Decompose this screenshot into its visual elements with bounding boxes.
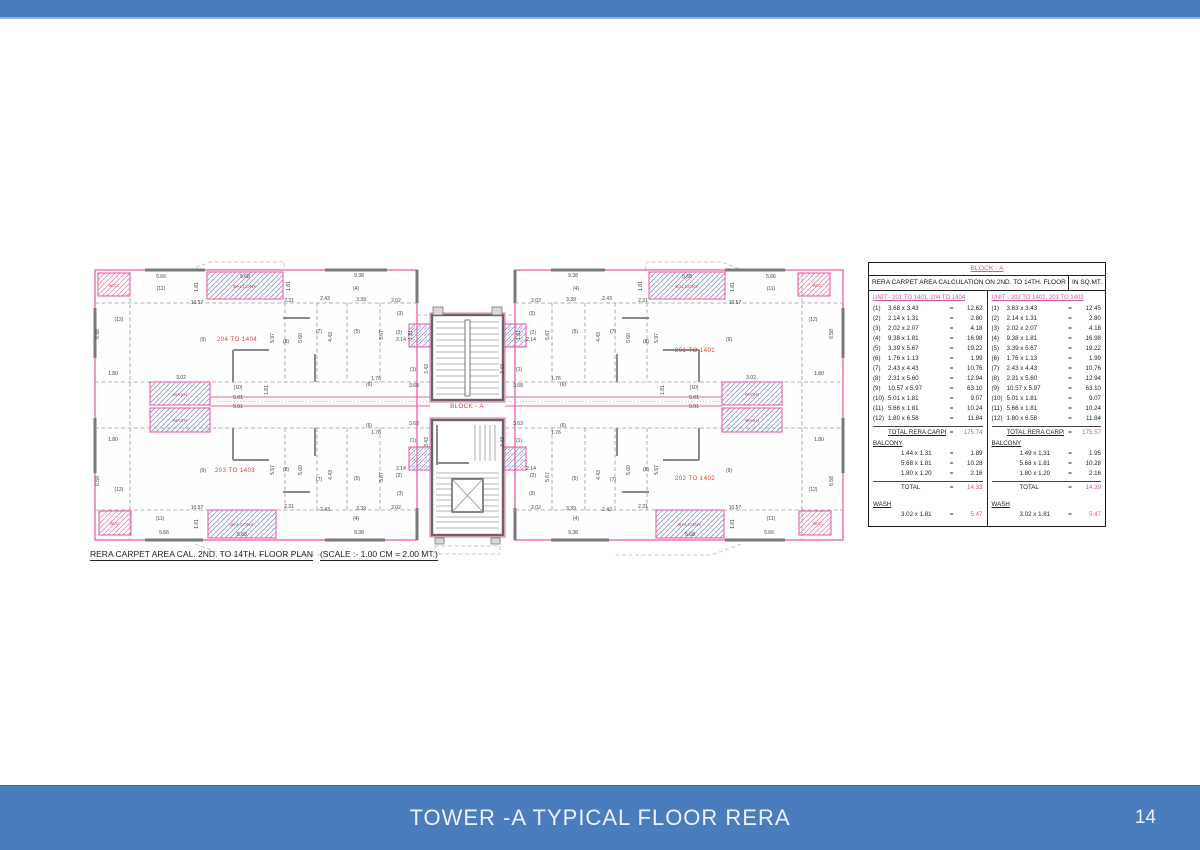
dim-label: WASH — [173, 418, 187, 423]
dim-label: 1.31 — [408, 330, 414, 340]
dim-label: 5.97 — [654, 333, 660, 343]
table-title-row: RERA CARPET AREA CALCULATION ON 2ND. TO … — [869, 276, 1105, 291]
table-row: 5.68 x 1.81=10.28 — [873, 459, 983, 469]
dim-label: (6) — [366, 382, 372, 388]
dim-label: 2.31 — [638, 298, 648, 304]
dim-label: 5.60 — [298, 465, 304, 475]
dim-label: 2.31 — [284, 298, 294, 304]
dim-label: 3.02 — [746, 375, 756, 381]
table-row: (7)2.43 x 4.43=10.76 — [992, 364, 1102, 374]
dim-label: W.C. — [813, 521, 824, 526]
table-row: 5.68 x 1.81=10.28 — [992, 459, 1102, 469]
dim-label: 5.97 — [270, 333, 276, 343]
table-block-header: BLOCK - A — [869, 263, 1105, 276]
dim-label: 5.68 — [240, 274, 250, 280]
table-row: (10)5.01 x 1.81=9.07 — [992, 394, 1102, 404]
dim-label: 9.38 — [568, 273, 578, 279]
dim-label: 5.01 — [233, 395, 243, 401]
dim-label: 5.60 — [626, 333, 632, 343]
area-table: BLOCK - A RERA CARPET AREA CALCULATION O… — [868, 262, 1106, 527]
caption-text: RERA CARPET AREA CAL. 2ND. TO 14TH. FLOO… — [90, 549, 313, 561]
table-row: (1)3.68 x 3.43=12.62 — [873, 304, 983, 314]
dim-label: (3) — [529, 311, 535, 317]
dim-label: 3.63 — [513, 421, 523, 427]
dim-label: 6.58 — [829, 476, 835, 486]
dim-label: (1) — [410, 438, 416, 444]
dim-label: 3.39 — [566, 506, 576, 512]
dim-label: 2.43 — [320, 296, 330, 302]
dim-label: W.C. — [109, 283, 120, 288]
dim-label: 1.80 — [108, 371, 118, 377]
table-row: 1.80 x 1.20=2.16 — [992, 469, 1102, 479]
dim-label: (5) — [572, 329, 578, 335]
dim-label: 1.76 — [551, 376, 561, 382]
dim-label: 5.66 — [764, 530, 774, 536]
dim-label: (7) — [316, 329, 322, 335]
dim-label: (12) — [115, 317, 124, 323]
dim-label: 2.14 — [396, 466, 406, 472]
unit-label: 203 TO 1403 — [215, 467, 255, 474]
dim-label: (10) — [234, 385, 243, 391]
table-row: TOTAL RERA CARPET=175.57 — [992, 428, 1102, 438]
table-row: (8)2.31 x 5.60=12.94 — [873, 374, 983, 384]
dim-label: (7) — [610, 477, 616, 483]
table-row: (7)2.43 x 4.43=10.76 — [873, 364, 983, 374]
dim-label: 3.63 — [409, 421, 419, 427]
dim-label: 1.31 — [516, 330, 522, 340]
dim-label: 5.97 — [654, 465, 660, 475]
dim-label: 5.60 — [626, 465, 632, 475]
dim-label: 5.67 — [545, 472, 551, 482]
dim-label: (11) — [157, 286, 166, 292]
dim-label: 5.67 — [379, 330, 385, 340]
dim-label: 2.14 — [396, 337, 406, 343]
dim-label: 9.38 — [354, 273, 364, 279]
unit-header: UNIT - 201 TO 1401, 204 TO 1404 — [873, 295, 983, 301]
dim-label: (4) — [353, 516, 359, 522]
dim-label: W.C. — [110, 521, 121, 526]
dim-label: WASH — [745, 392, 759, 397]
table-row: 1.49 x 1.31=1.95 — [992, 449, 1102, 459]
dim-label: 1.81 — [194, 282, 200, 292]
table-row: (12)1.80 x 6.58=11.84 — [992, 414, 1102, 424]
dim-label: (9) — [200, 337, 206, 343]
unit-label: 204 TO 1404 — [217, 336, 257, 343]
unit-columns: UNIT - 201 TO 1401, 204 TO 1404(1)3.68 x… — [869, 291, 1105, 526]
table-row: 1.80 x 1.20=2.16 — [873, 469, 983, 479]
table-row: (2)2.14 x 1.31=2.80 — [873, 314, 983, 324]
unit-label: 201 TO 1401 — [675, 347, 715, 354]
table-row: (9)10.57 x 5.97=63.10 — [873, 384, 983, 394]
dim-label: (1) — [516, 367, 522, 373]
dim-label: 10.57 — [191, 505, 204, 511]
dim-label: 3.39 — [356, 297, 366, 303]
caption-scale: (SCALE :- 1.00 CM = 2.00 MT.) — [320, 549, 438, 561]
dim-label: 5.66 — [766, 274, 776, 280]
staircase-upper — [430, 313, 505, 402]
wash-heading: WASH — [992, 500, 1102, 510]
dim-label: 1.81 — [638, 281, 644, 291]
table-row: (4)9.38 x 1.81=16.98 — [992, 334, 1102, 344]
dim-label: (4) — [573, 286, 579, 292]
dim-label: 2.02 — [531, 298, 541, 304]
dim-label: (1) — [516, 438, 522, 444]
dim-label: 2.43 — [602, 296, 612, 302]
dim-label: (5) — [354, 476, 360, 482]
table-row: (11)5.66 x 1.81=10.24 — [873, 404, 983, 414]
table-row: (6)1.76 x 1.13=1.99 — [992, 354, 1102, 364]
top-border-bar — [0, 0, 1200, 19]
dim-label: (11) — [767, 286, 776, 292]
table-row: (2)2.14 x 1.31=2.80 — [992, 314, 1102, 324]
dim-label: (2) — [530, 473, 536, 479]
dim-label: 3.68 — [513, 383, 523, 389]
divider — [873, 426, 983, 427]
dim-label: 10.57 — [191, 300, 204, 306]
table-row: (5)3.39 x 5.67=19.22 — [992, 344, 1102, 354]
balcony-heading: BALCONY — [992, 439, 1102, 449]
dim-label: (8) — [283, 467, 289, 473]
dim-label: (2) — [396, 330, 402, 336]
table-row: TOTAL=14.39 — [992, 483, 1102, 493]
dim-label: W.C. — [813, 283, 824, 288]
dim-label: BALCONY — [230, 522, 253, 527]
dim-label: 4.43 — [328, 470, 334, 480]
dim-label: (9) — [726, 337, 732, 343]
dim-label: 5.67 — [379, 472, 385, 482]
block-a-label: BLOCK - A — [970, 265, 1003, 272]
dim-label: 6.58 — [95, 476, 101, 486]
unit-header: UNIT - 202 TO 1402, 203 TO 1403 — [992, 295, 1102, 301]
table-row: (8)2.31 x 5.60=12.94 — [992, 374, 1102, 384]
table-row: 3.02 x 1.81=5.47 — [992, 510, 1102, 520]
dim-label: 1.81 — [730, 519, 736, 529]
table-row: (1)3.63 x 3.43=12.45 — [992, 304, 1102, 314]
plan-caption: RERA CARPET AREA CAL. 2ND. TO 14TH. FLOO… — [90, 549, 445, 559]
unit-label: 202 TO 1402 — [675, 475, 715, 482]
divider — [873, 481, 983, 482]
dim-label: 9.38 — [568, 530, 578, 536]
dim-label: 5.01 — [689, 395, 699, 401]
dim-label: 3.39 — [356, 506, 366, 512]
dim-label: (7) — [316, 477, 322, 483]
table-row: 3.02 x 1.81=5.47 — [873, 510, 983, 520]
dim-label: 3.39 — [566, 297, 576, 303]
table-row: (3)2.02 x 2.07=4.18 — [873, 324, 983, 334]
dim-label: (6) — [560, 423, 566, 429]
dim-label: 4.43 — [328, 332, 334, 342]
dim-label: 1.76 — [371, 430, 381, 436]
table-row: (3)2.02 x 2.07=4.18 — [992, 324, 1102, 334]
dim-label: (10) — [690, 385, 699, 391]
dim-label: 1.80 — [108, 437, 118, 443]
dim-label: (9) — [726, 468, 732, 474]
dim-label: (2) — [396, 473, 402, 479]
dim-label: 2.43 — [602, 507, 612, 513]
dim-label: (6) — [560, 382, 566, 388]
dim-label: 4.43 — [596, 470, 602, 480]
dim-label: 2.02 — [391, 298, 401, 304]
table-row: TOTAL RERA CARPET=175.74 — [873, 428, 983, 438]
dim-label: BALCONY — [675, 284, 698, 289]
dim-label: 2.02 — [391, 505, 401, 511]
dim-label: (4) — [573, 516, 579, 522]
footer-bar: TOWER -A TYPICAL FLOOR RERA 14 — [0, 785, 1200, 850]
dim-label: WASH — [173, 392, 187, 397]
entry-hatch-4 — [503, 447, 526, 470]
dim-label: 2.14 — [526, 337, 536, 343]
dim-label: 1.81 — [194, 519, 200, 529]
footer-title: TOWER -A TYPICAL FLOOR RERA — [0, 805, 1200, 831]
dim-label: 1.80 — [814, 371, 824, 377]
dim-label: 5.01 — [689, 404, 699, 410]
table-row: (6)1.76 x 1.13=1.99 — [873, 354, 983, 364]
dim-label: (11) — [156, 516, 165, 522]
dim-label: (3) — [529, 491, 535, 497]
dim-label: (8) — [643, 467, 649, 473]
dim-label: 5.97 — [270, 465, 276, 475]
entry-hatch-3 — [409, 447, 432, 470]
dim-label: (11) — [767, 516, 776, 522]
unit-column: UNIT - 201 TO 1401, 204 TO 1404(1)3.68 x… — [869, 291, 987, 526]
dim-label: (5) — [572, 476, 578, 482]
staircase-lower — [430, 418, 505, 537]
dim-label: 2.43 — [320, 507, 330, 513]
dim-label: (5) — [354, 329, 360, 335]
table-row: 1.44 x 1.31=1.89 — [873, 449, 983, 459]
dim-label: (6) — [366, 423, 372, 429]
balcony-heading: BALCONY — [873, 439, 983, 449]
dim-label: 2.14 — [526, 466, 536, 472]
dim-label: 3.43 — [424, 437, 430, 447]
dim-label: (8) — [643, 339, 649, 345]
dim-label: (2) — [530, 330, 536, 336]
dim-label: 9.38 — [354, 530, 364, 536]
dim-label: BALCONY — [678, 522, 701, 527]
table-title: RERA CARPET AREA CALCULATION ON 2ND. TO … — [869, 276, 1068, 290]
dim-label: 4.43 — [596, 332, 602, 342]
dim-label: (3) — [397, 491, 403, 497]
dim-label: 1.81 — [264, 385, 270, 395]
dim-label: 5.67 — [545, 330, 551, 340]
dim-label: (8) — [283, 339, 289, 345]
dim-label: 3.02 — [176, 375, 186, 381]
dim-label: (7) — [610, 329, 616, 335]
dim-label: (12) — [115, 487, 124, 493]
table-row: (10)5.01 x 1.81=9.07 — [873, 394, 983, 404]
dim-label: 1.76 — [551, 430, 561, 436]
table-row: (5)3.39 x 5.67=19.22 — [873, 344, 983, 354]
divider — [992, 426, 1102, 427]
entry-hatch-2 — [503, 324, 526, 347]
table-units-label: IN SQ.MT. — [1068, 276, 1105, 290]
dim-label: (12) — [809, 487, 818, 493]
dim-label: (12) — [809, 317, 818, 323]
table-row: (4)9.38 x 1.81=16.98 — [873, 334, 983, 344]
dim-label: 6.58 — [95, 329, 101, 339]
dim-label: 5.68 — [685, 532, 695, 538]
dim-label: 5.60 — [298, 333, 304, 343]
dim-label: 3.68 — [409, 383, 419, 389]
table-row: TOTAL=14.33 — [873, 483, 983, 493]
dim-label: 1.81 — [286, 281, 292, 291]
floor-plan: 5.66(11)1.815.68BALCONY1.8110.572.312.43… — [85, 258, 851, 560]
dim-label: 5.01 — [233, 404, 243, 410]
dim-label: 5.66 — [156, 274, 166, 280]
table-row: (11)5.66 x 1.81=10.24 — [992, 404, 1102, 414]
dim-label: 10.57 — [729, 300, 742, 306]
table-row: (9)10.57 x 5.97=63.10 — [992, 384, 1102, 394]
dim-label: 1.80 — [814, 437, 824, 443]
dim-label: 2.31 — [638, 504, 648, 510]
dim-label: 1.76 — [371, 376, 381, 382]
dim-label: 10.57 — [729, 505, 742, 511]
dim-label: 3.43 — [424, 364, 430, 374]
page: { "colors":{"blue":"#4a7dbd","pink":"#cb… — [0, 0, 1200, 849]
page-number: 14 — [1135, 807, 1156, 829]
dim-label: 1.81 — [730, 282, 736, 292]
divider — [992, 481, 1102, 482]
dim-label: (4) — [353, 286, 359, 292]
dim-label: 3.43 — [500, 437, 506, 447]
dim-label: (3) — [397, 311, 403, 317]
dim-label: (1) — [410, 367, 416, 373]
dim-label: 5.68 — [237, 532, 247, 538]
table-row: (12)1.80 x 6.58=11.84 — [873, 414, 983, 424]
dim-label: 2.31 — [284, 504, 294, 510]
dim-label: 6.58 — [829, 329, 835, 339]
dim-label: 2.02 — [531, 505, 541, 511]
dim-label: (9) — [200, 468, 206, 474]
wash-heading: WASH — [873, 500, 983, 510]
dim-label: BALCONY — [233, 284, 256, 289]
dim-label: 1.81 — [660, 385, 666, 395]
unit-column: UNIT - 202 TO 1402, 203 TO 1403(1)3.63 x… — [987, 291, 1106, 526]
dim-label: 3.43 — [500, 364, 506, 374]
dim-label: 5.68 — [682, 274, 692, 280]
dim-label: 5.66 — [159, 530, 169, 536]
dim-label: WASH — [745, 418, 759, 423]
unit-label: BLOCK - A — [450, 403, 484, 410]
